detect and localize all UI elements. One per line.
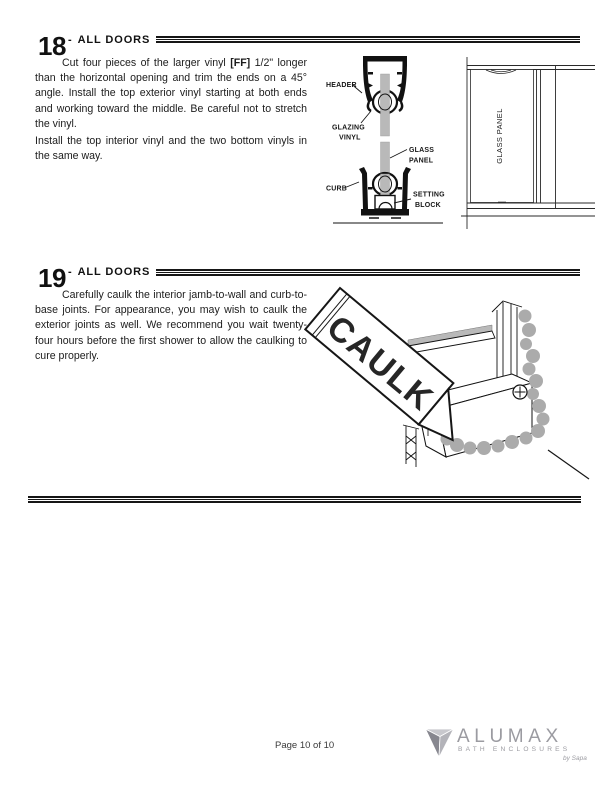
screw-head-icon [513, 385, 527, 399]
step-19-title: -ALL DOORS [68, 266, 150, 278]
glass-panel-label-2: PANEL [409, 158, 434, 165]
glazing-vinyl-label-1: GLAZING [332, 125, 365, 132]
step-18-heading-rule [156, 36, 580, 43]
brand-tagline: BATH ENCLOSURES [458, 746, 570, 753]
step-19-title-dash: - [68, 266, 73, 278]
curb-label: CURB [326, 186, 347, 193]
base-edge-line [548, 450, 589, 479]
caulk-illustration: CAULK [296, 286, 598, 486]
step-18-paragraph-2: Install the top interior vinyl and the t… [35, 134, 307, 164]
glazing-vinyl-label-2: VINYL [339, 135, 361, 142]
setting-block-label-1: SETTING [413, 192, 445, 199]
ff-part-reference: [FF] [230, 57, 250, 69]
step-19-paragraph: Carefully caulk the interior jamb-to-wal… [35, 288, 307, 364]
step-19-title-text: ALL DOORS [78, 266, 151, 278]
glass-panel-label-1: GLASS [409, 147, 434, 154]
header-label: HEADER [326, 82, 357, 89]
setting-block-label-2: BLOCK [415, 202, 441, 209]
elevation-glass-panel-label: GLASS PANEL [495, 108, 504, 164]
page-divider-rule [28, 496, 581, 503]
brand-name: ALUMAX [457, 726, 563, 748]
brand-triangle-icon [425, 728, 455, 759]
cross-section-diagram: HEADER GLAZING VINYL GLASS PANEL CURB SE… [323, 52, 461, 232]
step-18-title-text: ALL DOORS [78, 34, 151, 46]
step-18-paragraph-1: Cut four pieces of the larger vinyl [FF]… [35, 56, 307, 132]
manual-page: 18 -ALL DOORS Cut four pieces of the lar… [0, 0, 612, 792]
wall-jamb-drawing [403, 425, 419, 467]
page-number-label: Page 10 of 10 [275, 740, 334, 751]
step-18-title-dash: - [68, 34, 73, 46]
glass-panel-upper [381, 74, 390, 136]
elevation-diagram: GLASS PANEL [452, 52, 595, 232]
step-18-title: -ALL DOORS [68, 34, 150, 46]
brand-logo: ALUMAX BATH ENCLOSURES by Sapa [425, 724, 595, 766]
step-18-para1-pre: Cut four pieces of the larger vinyl [62, 57, 230, 69]
step-19-heading-rule [156, 269, 580, 276]
brand-byline: by Sapa [563, 755, 587, 762]
